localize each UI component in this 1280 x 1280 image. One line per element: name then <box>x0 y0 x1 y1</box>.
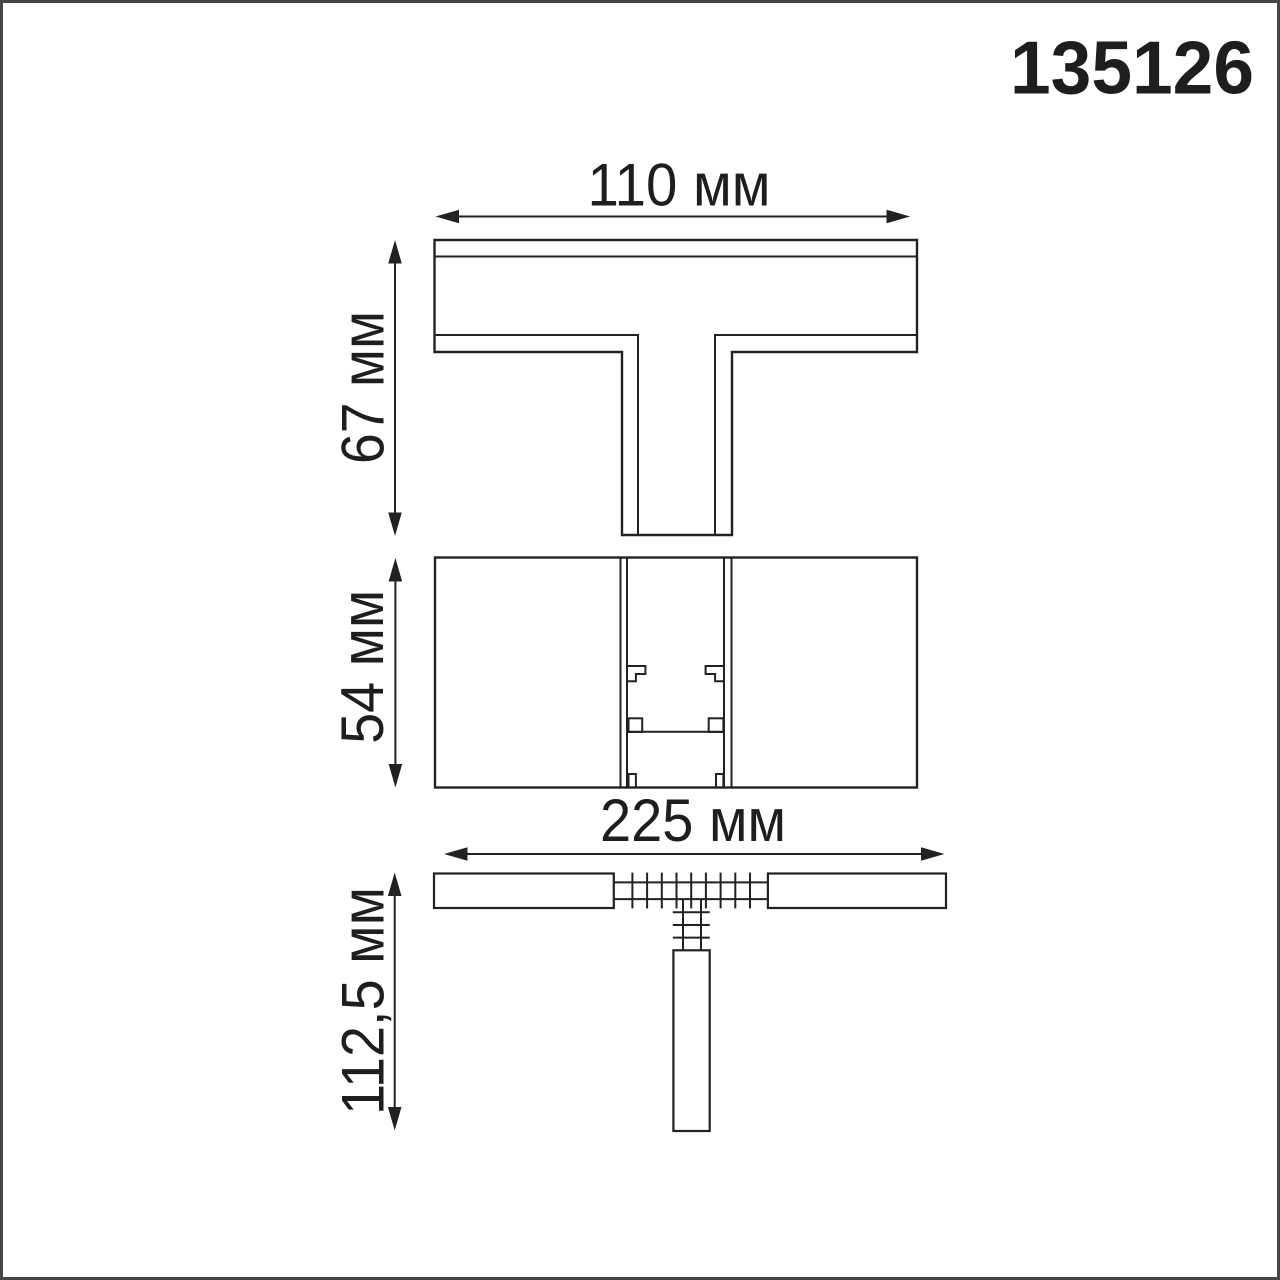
svg-text:110 мм: 110 мм <box>588 151 771 218</box>
svg-text:54 мм: 54 мм <box>329 590 396 744</box>
svg-text:112,5 мм: 112,5 мм <box>330 887 397 1115</box>
svg-text:225 мм: 225 мм <box>600 787 786 854</box>
svg-text:135126: 135126 <box>1010 25 1254 109</box>
svg-text:67 мм: 67 мм <box>330 311 397 464</box>
